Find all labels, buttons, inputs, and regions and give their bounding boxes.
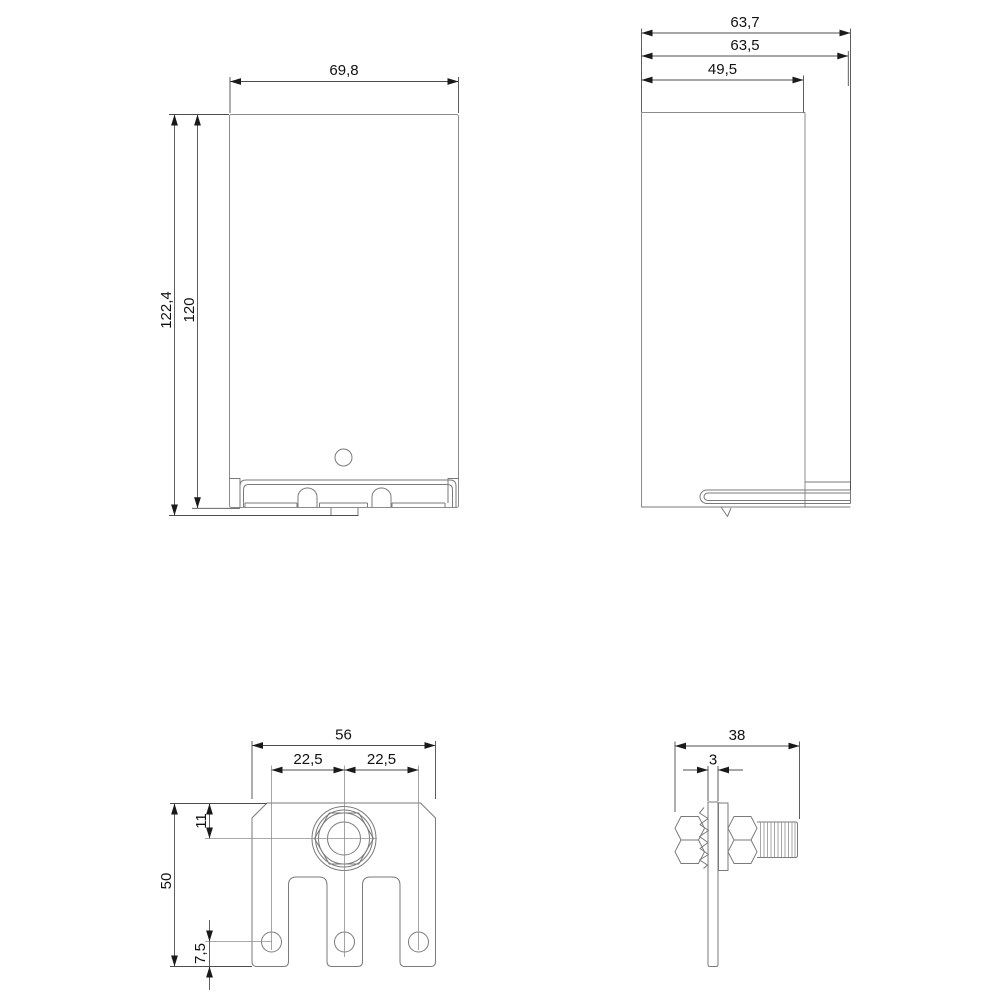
- center-lines: [205, 766, 419, 958]
- mounting-holes: [262, 932, 429, 952]
- plate-section: [708, 802, 718, 967]
- dim-bottom-pitch-right-label: 22,5: [367, 751, 396, 768]
- dim-bottom-pitch-left: 22,5: [272, 751, 345, 773]
- front-hole: [335, 449, 352, 466]
- dim-bottom-height-label: 50: [158, 873, 175, 890]
- dim-side-total-depth-label: 63,7: [730, 14, 759, 31]
- din-clip-hook: [721, 507, 731, 517]
- dim-side-total-depth: 63,7: [642, 14, 851, 490]
- technical-drawing: 69,8 122,4 120 63,7: [0, 0, 1000, 1000]
- dim-stud-offset: 11: [193, 804, 213, 839]
- dim-stud-offset-label: 11: [193, 813, 210, 829]
- dim-bottom-pitch-right: 22,5: [345, 751, 419, 773]
- bolt-view: 38 3: [675, 727, 800, 967]
- dim-bottom-width: 56: [252, 727, 436, 800]
- dim-front-body-height-label: 120: [181, 297, 198, 322]
- bolt-geometry: [675, 802, 798, 967]
- drawing-canvas: 69,8 122,4 120 63,7: [0, 0, 1000, 1000]
- dim-plate-thickness-label: 3: [709, 752, 717, 769]
- dim-front-width-label: 69,8: [329, 62, 358, 79]
- dim-bolt-length: 38: [675, 727, 800, 819]
- bracket-plate-outline: [252, 803, 436, 967]
- dim-side-front-depth-label: 49,5: [708, 61, 737, 78]
- dim-hole-offset: 7,5: [192, 920, 213, 990]
- dim-side-depth-label: 63,5: [730, 37, 759, 54]
- front-view-outline: [230, 115, 459, 516]
- flat-washer: [719, 803, 729, 871]
- dim-side-depth: 63,5: [642, 37, 849, 86]
- hex-head-side: [728, 817, 757, 841]
- side-view: 63,7 63,5 49,5: [642, 14, 851, 517]
- dim-bolt-length-label: 38: [729, 727, 746, 744]
- threaded-stud: [757, 822, 798, 858]
- dim-front-total-height-label: 122,4: [158, 291, 175, 329]
- bottom-view: 56 22,5 22,5 50 11 7,5: [158, 727, 436, 991]
- dim-plate-thickness: 3: [683, 752, 743, 802]
- dim-front-body-height: 120: [181, 115, 240, 509]
- dim-bottom-pitch-left-label: 22,5: [293, 751, 322, 768]
- dim-hole-offset-label: 7,5: [192, 943, 209, 964]
- lock-washer: [700, 808, 709, 869]
- dim-front-width: 69,8: [230, 62, 459, 113]
- dim-bottom-width-label: 56: [335, 727, 352, 744]
- front-view: 69,8 122,4 120: [158, 62, 459, 516]
- dim-side-front-depth: 49,5: [642, 61, 804, 113]
- side-view-outline: [642, 113, 851, 517]
